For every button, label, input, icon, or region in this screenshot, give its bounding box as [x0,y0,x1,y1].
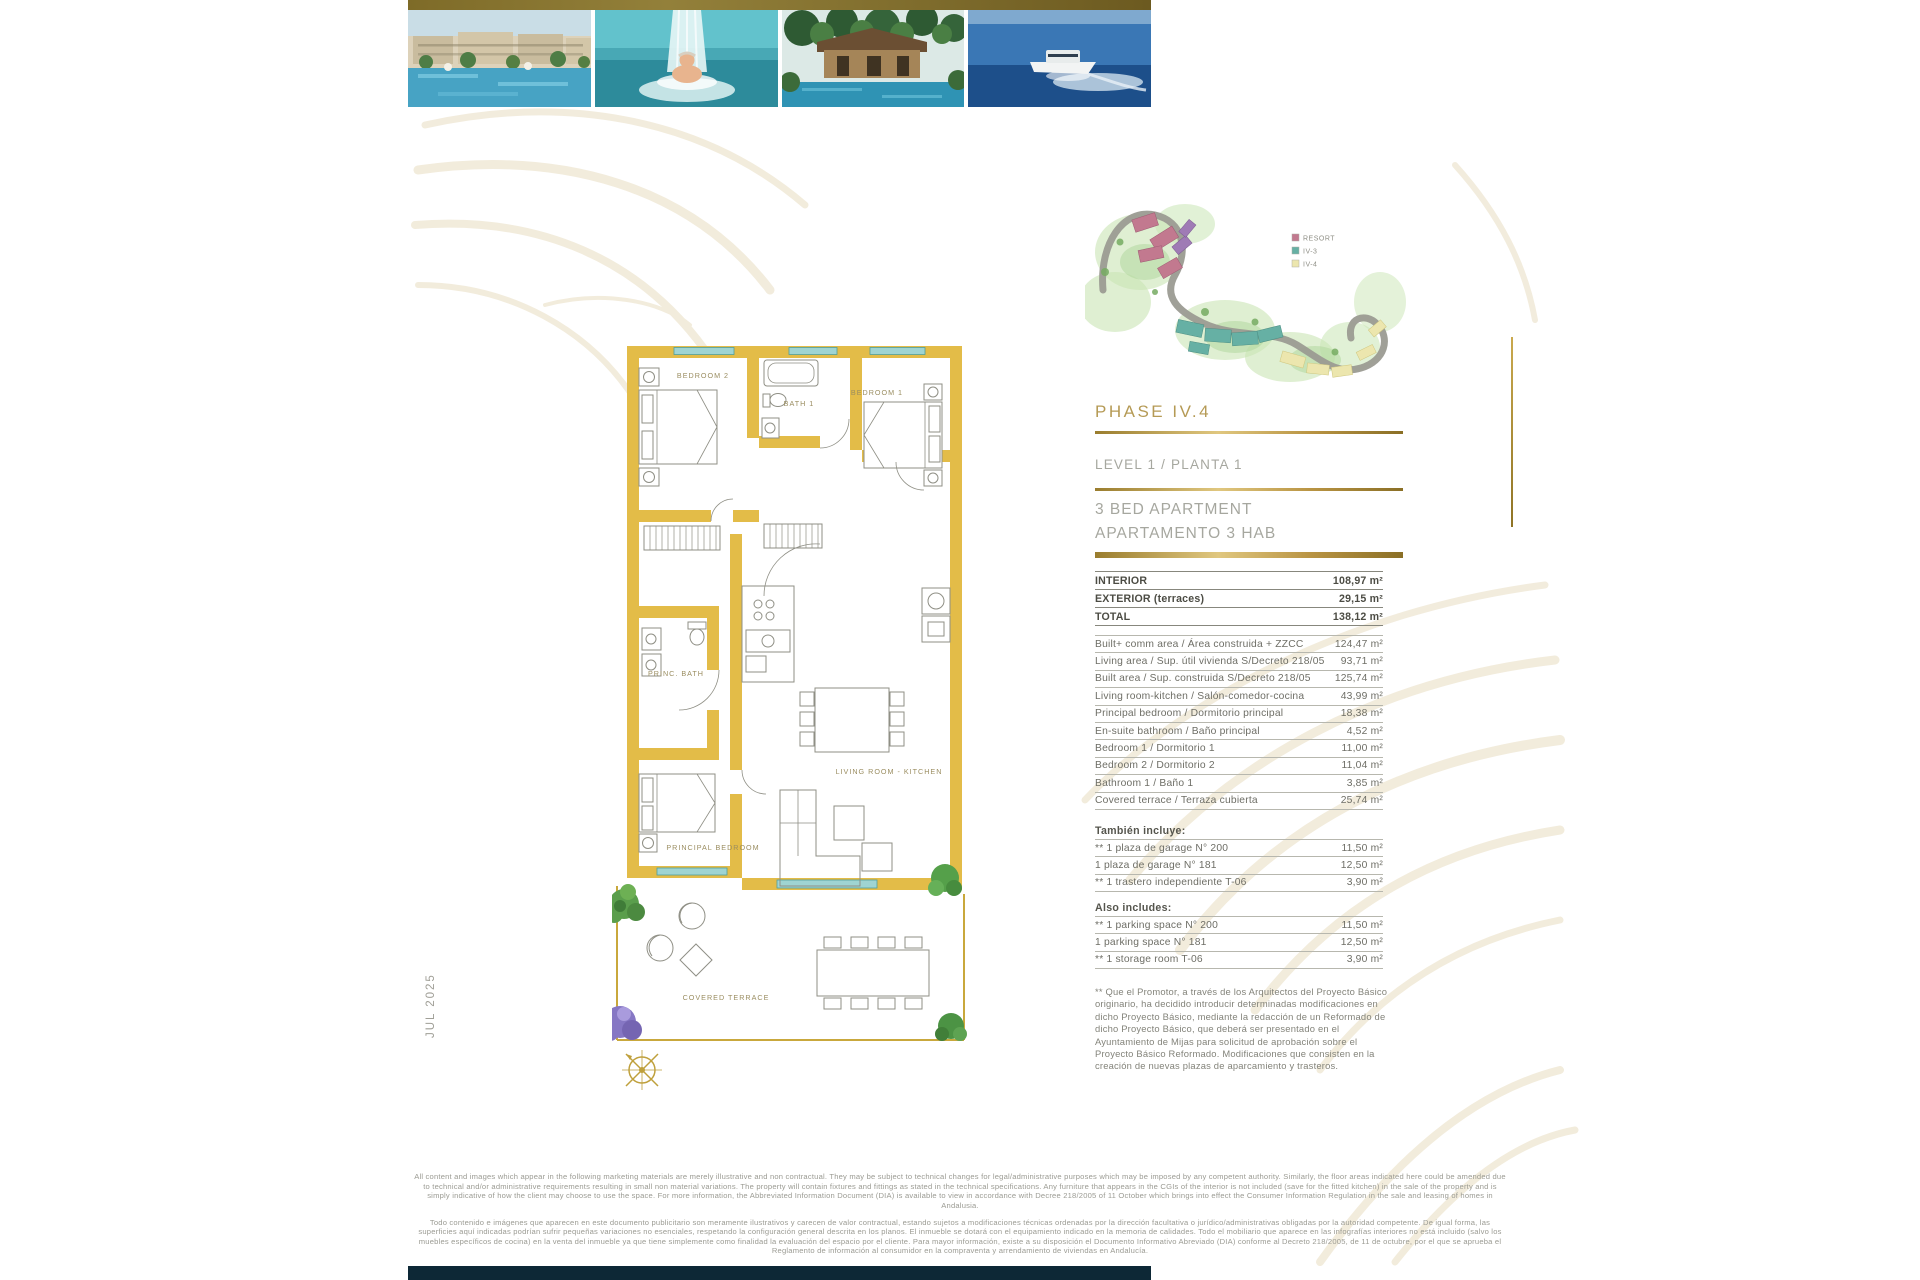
row-label: ** 1 parking space N° 200 [1095,920,1218,931]
row-label: Built+ comm area / Área construida + ZZC… [1095,639,1304,650]
row-value: 29,15 m² [1339,593,1383,605]
unit-title: 3 BED APARTMENT APARTAMENTO 3 HAB [1095,498,1276,546]
row-value: 3,85 m² [1347,778,1383,789]
row-value: 3,90 m² [1347,954,1383,965]
table-row: INTERIOR 108,97 m² [1095,572,1383,590]
row-label: ** 1 trastero independiente T-06 [1095,877,1247,888]
row-label: Bedroom 2 / Dormitorio 2 [1095,760,1215,771]
table-row: ** 1 parking space N° 200 11,50 m² [1095,917,1383,934]
summary-table: INTERIOR 108,97 m² EXTERIOR (terraces) 2… [1095,571,1383,626]
tropical-resort-photo [782,10,965,107]
photo-strip [408,10,1151,107]
row-value: 11,00 m² [1342,743,1383,754]
row-value: 43,99 m² [1341,691,1383,702]
resort-pool-photo [408,10,591,107]
row-value: 108,97 m² [1333,575,1383,587]
row-label: ** 1 plaza de garage N° 200 [1095,843,1228,854]
table-row: Built+ comm area / Área construida + ZZC… [1095,636,1383,653]
row-value: 93,71 m² [1341,656,1383,667]
tambien-incluye-heading: También incluye: [1095,823,1383,840]
row-label: Bathroom 1 / Baño 1 [1095,778,1193,789]
yacht-photo-art [968,10,1151,107]
row-label: EXTERIOR (terraces) [1095,593,1204,605]
table-row: En-suite bathroom / Baño principal 4,52 … [1095,723,1383,740]
unit-title-es: APARTAMENTO 3 HAB [1095,522,1276,546]
row-label: Bedroom 1 / Dormitorio 1 [1095,743,1215,754]
gold-divider-thick [1095,552,1403,558]
disclaimer-en: All content and images which appear in t… [412,1172,1508,1211]
row-label: Principal bedroom / Dormitorio principal [1095,708,1283,719]
table-row: Bedroom 1 / Dormitorio 1 11,00 m² [1095,740,1383,757]
also-includes-table: Also includes: ** 1 parking space N° 200… [1095,900,1383,969]
legend-swatch-iv4 [1292,260,1299,267]
table-row: ** 1 trastero independiente T-06 3,90 m² [1095,875,1383,892]
disclaimer-es: Todo contenido e imágenes que aparecen e… [412,1218,1508,1257]
gold-divider [1095,431,1403,434]
room-label-bedroom2: BEDROOM 2 [677,371,729,380]
legend-label-iv3: IV-3 [1303,249,1317,256]
plants [612,864,967,1041]
legend-label-iv4: IV-4 [1303,262,1317,269]
table-row: Principal bedroom / Dormitorio principal… [1095,706,1383,723]
area-table: Built+ comm area / Área construida + ZZC… [1095,635,1383,810]
site-map-legend: RESORT IV-3 IV-4 [1292,234,1335,269]
legal-disclaimers: All content and images which appear in t… [412,1172,1508,1263]
row-value: 11,50 m² [1342,920,1383,931]
row-label: ** 1 storage room T-06 [1095,954,1203,965]
table-row: 1 plaza de garage N° 181 12,50 m² [1095,857,1383,874]
compass-rose-icon [622,1050,662,1090]
promoter-footnote: ** Que el Promotor, a través de los Arqu… [1095,986,1397,1073]
row-label: 1 parking space N° 181 [1095,937,1207,948]
row-label: Covered terrace / Terraza cubierta [1095,795,1258,806]
table-row: Bedroom 2 / Dormitorio 2 11,04 m² [1095,758,1383,775]
brochure-page: { "page": { "date_label": "JUL 2025" }, … [0,0,1920,1280]
row-value: 3,90 m² [1347,877,1383,888]
tropical-resort-photo-art [782,10,965,107]
yacht-photo [968,10,1151,107]
table-row: Covered terrace / Terraza cubierta 25,74… [1095,793,1383,810]
room-label-princ-bath: PRINC. BATH [648,669,704,678]
table-row: ** 1 storage room T-06 3,90 m² [1095,952,1383,969]
row-value: 124,47 m² [1335,639,1383,650]
row-value: 18,38 m² [1341,708,1383,719]
green-plant-bottom-right [935,1013,967,1041]
legend-label-resort: RESORT [1303,236,1335,243]
row-label: En-suite bathroom / Baño principal [1095,726,1260,737]
table-row: Bathroom 1 / Baño 1 3,85 m² [1095,775,1383,792]
table-row: Living area / Sup. útil vivienda S/Decre… [1095,653,1383,670]
row-value: 25,74 m² [1341,795,1383,806]
room-label-bedroom1: BEDROOM 1 [851,388,903,397]
row-value: 138,12 m² [1333,611,1383,623]
table-row: EXTERIOR (terraces) 29,15 m² [1095,590,1383,608]
level-title: LEVEL 1 / PLANTA 1 [1095,457,1243,472]
row-label: 1 plaza de garage N° 181 [1095,860,1217,871]
row-value: 125,74 m² [1335,673,1383,684]
room-label-living: LIVING ROOM - KITCHEN [836,767,943,776]
room-label-terrace: COVERED TERRACE [683,993,770,1002]
room-label-bath1: BATH 1 [784,399,815,408]
bottom-accent-bar [408,1266,1151,1280]
row-value: 4,52 m² [1347,726,1383,737]
row-value: 12,50 m² [1341,937,1383,948]
legend-swatch-resort [1292,234,1299,241]
purple-plant [612,1006,642,1041]
unit-title-en: 3 BED APARTMENT [1095,498,1276,522]
top-accent-bar [408,0,1151,10]
row-label: INTERIOR [1095,575,1147,587]
site-plan-map: RESORT IV-3 IV-4 [1085,182,1415,402]
row-value: 12,50 m² [1341,860,1383,871]
legend-swatch-iv3 [1292,247,1299,254]
row-value: 11,50 m² [1342,843,1383,854]
table-row: Living room-kitchen / Salón-comedor-coci… [1095,688,1383,705]
date-label: JUL 2025 [425,973,437,1038]
row-label: Living room-kitchen / Salón-comedor-coci… [1095,691,1304,702]
tambien-incluye-table: También incluye: ** 1 plaza de garage N°… [1095,823,1383,892]
table-row: ** 1 plaza de garage N° 200 11,50 m² [1095,840,1383,857]
row-label: TOTAL [1095,611,1130,623]
table-row: Built area / Sup. construida S/Decreto 2… [1095,671,1383,688]
spa-waterfall-photo [595,10,778,107]
gold-divider [1095,488,1403,491]
spa-waterfall-photo-art [595,10,778,107]
phase-title: PHASE IV.4 [1095,402,1211,422]
row-value: 11,04 m² [1342,760,1383,771]
row-label: Living area / Sup. útil vivienda S/Decre… [1095,656,1325,667]
also-includes-heading: Also includes: [1095,900,1383,917]
resort-pool-photo-art [408,10,591,107]
gold-edge-accent [1511,337,1513,527]
table-row: 1 parking space N° 181 12,50 m² [1095,934,1383,951]
table-row: TOTAL 138,12 m² [1095,608,1383,626]
row-label: Built area / Sup. construida S/Decreto 2… [1095,673,1311,684]
floor-plan: BEDROOM 2 BATH 1 BEDROOM 1 PRINC. BATH P… [612,338,974,1102]
room-label-principal-bedroom: PRINCIPAL BEDROOM [666,843,759,852]
terrace-boundary [617,886,964,1040]
